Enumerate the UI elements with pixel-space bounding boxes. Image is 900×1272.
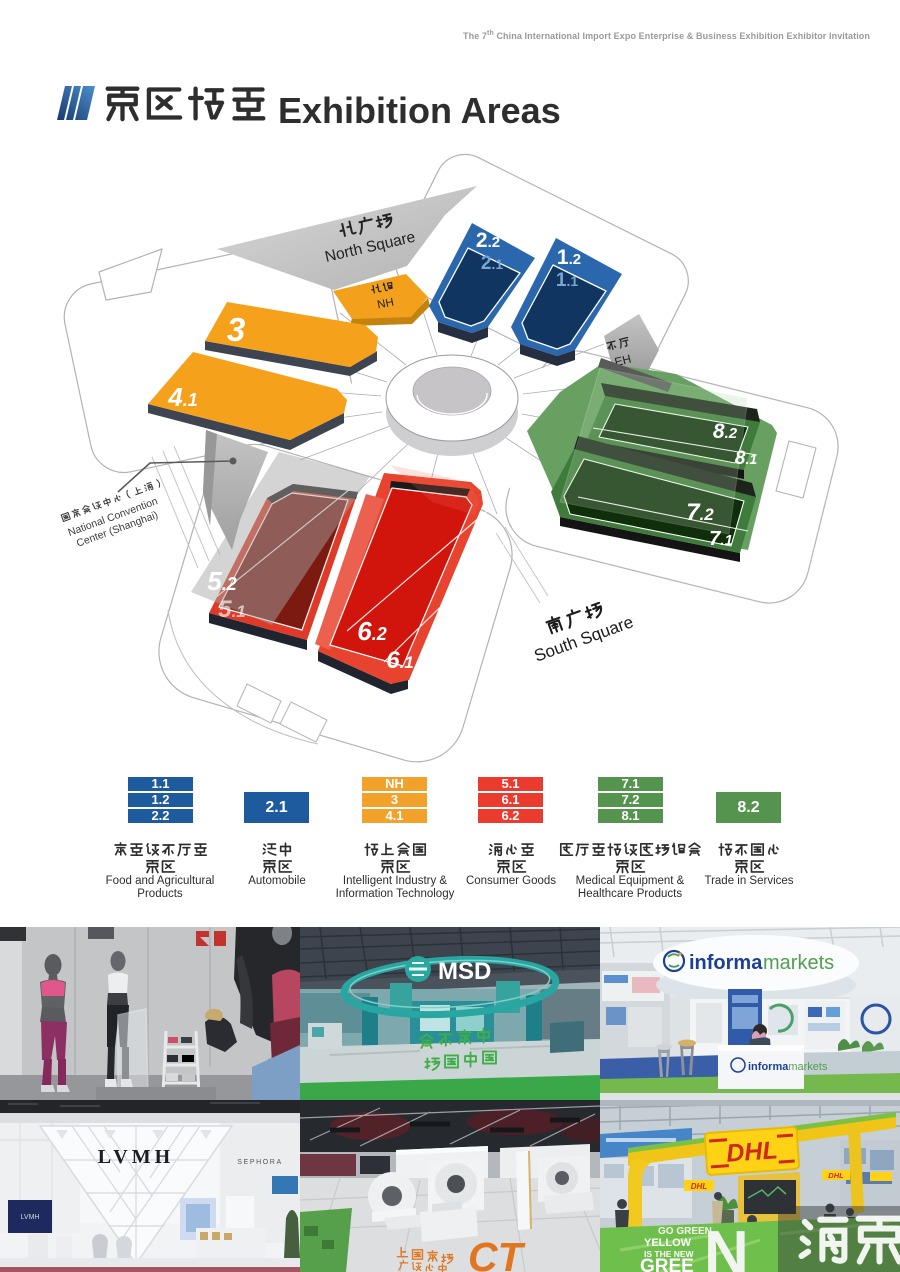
svg-text:2.1: 2.1	[481, 253, 503, 274]
svg-text:informa: informa	[689, 952, 763, 974]
svg-text:1.1: 1.1	[556, 270, 578, 291]
svg-text:SEPHORA: SEPHORA	[237, 1159, 282, 1166]
svg-text:South Square: South Square	[532, 612, 636, 665]
svg-text:N: N	[704, 1219, 749, 1272]
svg-text:CT: CT	[468, 1234, 526, 1272]
svg-text:DHL: DHL	[691, 1182, 708, 1191]
svg-text:8.1: 8.1	[735, 448, 757, 469]
svg-text:LVMH: LVMH	[21, 1214, 40, 1221]
svg-text:MSD: MSD	[438, 958, 491, 985]
svg-text:YELLOW: YELLOW	[644, 1237, 692, 1249]
svg-text:markets: markets	[763, 952, 834, 974]
svg-text:informamarkets: informamarkets	[748, 1061, 828, 1073]
svg-text:GREE: GREE	[640, 1256, 694, 1272]
svg-text:DHL: DHL	[828, 1171, 844, 1180]
svg-text:3: 3	[227, 311, 245, 348]
svg-text:DHL: DHL	[725, 1136, 778, 1168]
svg-text:7.1: 7.1	[709, 528, 733, 550]
svg-text:LVMH: LVMH	[98, 1146, 174, 1168]
